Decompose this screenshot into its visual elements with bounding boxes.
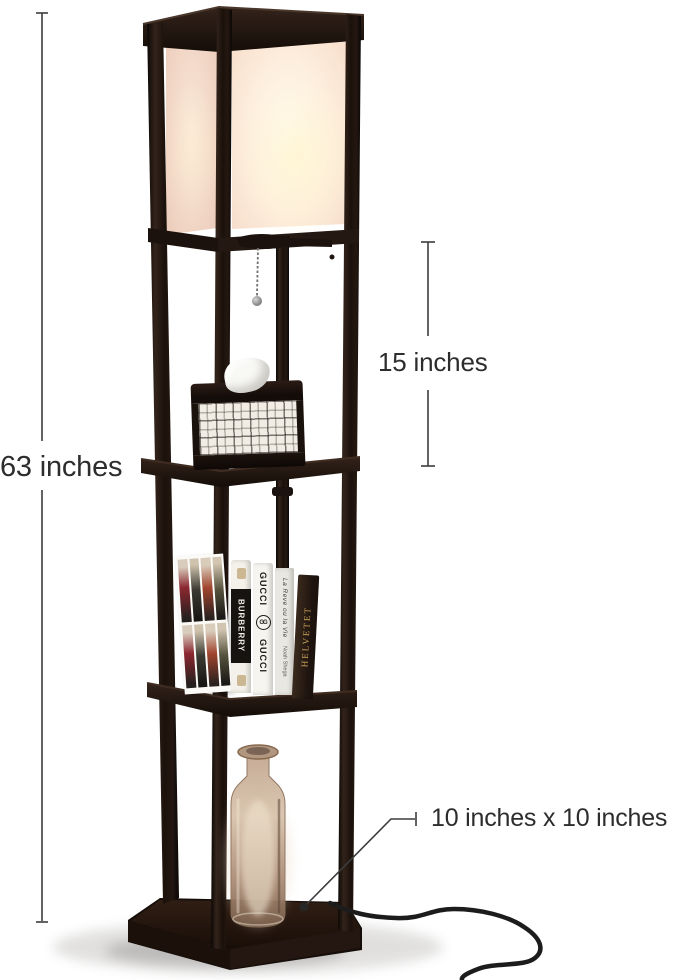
magazine <box>175 553 233 694</box>
floor-lamp-illustration <box>0 0 679 980</box>
dimension-label-total-height: 63 inches <box>0 453 122 482</box>
dimension-label-base-size: 10 inches x 10 inches <box>431 806 667 831</box>
helvetet-spine-title: HELVETET <box>299 606 312 668</box>
burberry-spine-title: BURBERRY <box>237 599 246 652</box>
pull-chain-ball <box>252 296 262 306</box>
magazine-photo-grid <box>182 622 230 688</box>
book-burberry: BURBERRY <box>231 560 251 693</box>
magazine-photo-grid <box>177 557 225 623</box>
glass-bottle <box>226 745 290 927</box>
tissue-box <box>191 380 306 470</box>
leader-line-base <box>300 812 417 912</box>
gucci-spine-title: GUCCI <box>258 572 268 606</box>
burberry-crest <box>237 675 246 686</box>
dimension-label-shade-height: 15 inches <box>378 349 488 375</box>
lareve-spine-author: Noah Shega <box>282 646 288 677</box>
tissue-box-plaid-body <box>191 400 305 456</box>
book-gucci: GUCCI GG GUCCI <box>253 563 273 695</box>
pull-chain <box>252 248 262 306</box>
bottle-lip <box>238 745 278 759</box>
lareve-spine-title: La Reve ou la Vie <box>281 578 288 638</box>
book-stack: BURBERRY GUCCI GG GUCCI La Reve ou la Vi… <box>180 545 320 700</box>
book-helvetet: HELVETET <box>292 575 319 700</box>
burberry-crest <box>237 568 246 579</box>
product-image: BURBERRY GUCCI GG GUCCI La Reve ou la Vi… <box>0 0 679 980</box>
gucci-gg-logo: GG <box>256 615 271 630</box>
bulb-glow <box>236 76 360 240</box>
burberry-spine-band: BURBERRY <box>231 589 251 663</box>
gucci-spine-title: GUCCI <box>258 639 268 673</box>
book-lareve: La Reve ou la Vie Noah Shega <box>275 568 294 695</box>
bulb-glow-side <box>162 80 222 220</box>
stem-adjuster-knob <box>272 487 293 496</box>
